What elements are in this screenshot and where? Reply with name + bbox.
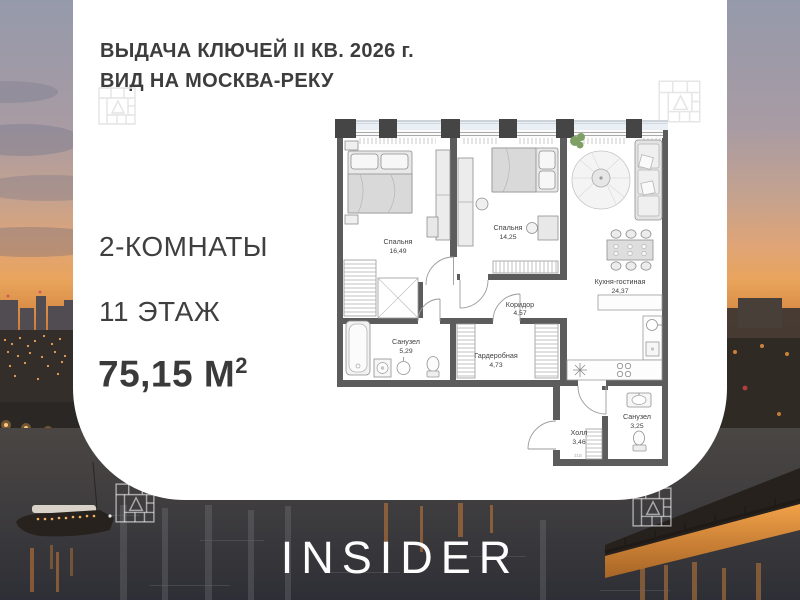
- bedroom1-furniture: [344, 141, 450, 318]
- fridge-icon: [573, 363, 587, 377]
- promo-banner: ВЫДАЧА КЛЮЧЕЙ II КВ. 2026 г. ВИД НА МОСК…: [0, 0, 800, 600]
- room-label-wardrobe: Гардеробная: [474, 351, 518, 360]
- room-label-corridor: Коридор: [506, 300, 534, 309]
- toilet-icon: [427, 357, 439, 372]
- card-header: ВЫДАЧА КЛЮЧЕЙ II КВ. 2026 г. ВИД НА МОСК…: [100, 36, 414, 96]
- room-label-bathroom2: Санузел: [623, 412, 651, 421]
- area-value: 75,15: [98, 353, 193, 394]
- bathroom-fixtures: [346, 321, 439, 377]
- window-sills: [358, 138, 661, 144]
- area-sup: 2: [235, 353, 248, 378]
- sink2-icon: [632, 396, 646, 405]
- floor-plan: Спальня 16,49 Спальня 14,25 Кухня-гостин…: [330, 118, 670, 470]
- header-line1: ВЫДАЧА КЛЮЧЕЙ II КВ. 2026 г.: [100, 36, 414, 66]
- plan-stamp: 31В: [574, 453, 582, 458]
- sink-icon: [397, 362, 410, 375]
- header-line2: ВИД НА МОСКВА-РЕКУ: [100, 66, 414, 96]
- room-label-hall: Холл: [571, 428, 588, 437]
- kitchen-living-furniture: [567, 133, 662, 380]
- floor-label: 11 ЭТАЖ: [99, 296, 220, 328]
- area-unit: М: [204, 353, 235, 394]
- room-area-corridor: 4,57: [513, 310, 526, 317]
- city-skyline-right: [718, 298, 800, 430]
- rooms-count-label: 2-КОМНАТЫ: [99, 231, 268, 263]
- room-area-bedroom1: 16,49: [389, 248, 406, 255]
- room-label-kitchen: Кухня-гостиная: [595, 277, 646, 286]
- bedroom2-furniture: [458, 148, 558, 273]
- brand-logo: INSIDER: [0, 532, 800, 584]
- bathroom2-fixtures: [627, 393, 651, 451]
- total-area-label: 75,15 М2: [98, 353, 248, 395]
- room-area-bedroom2: 14,25: [499, 234, 516, 241]
- hall-cabinet: [586, 429, 602, 459]
- room-area-bathroom2: 3,25: [630, 423, 643, 430]
- room-label-bathroom1: Санузел: [392, 337, 420, 346]
- room-label-bedroom1: Спальня: [384, 237, 413, 246]
- toilet2-icon: [634, 431, 645, 445]
- room-area-wardrobe: 4,73: [489, 362, 502, 369]
- room-area-bathroom1: 5,29: [399, 348, 412, 355]
- room-area-kitchen: 24,37: [611, 288, 628, 295]
- brand-mark-top-left-icon: [97, 86, 137, 126]
- room-area-hall: 3,46: [572, 439, 585, 446]
- room-label-bedroom2: Спальня: [494, 223, 523, 232]
